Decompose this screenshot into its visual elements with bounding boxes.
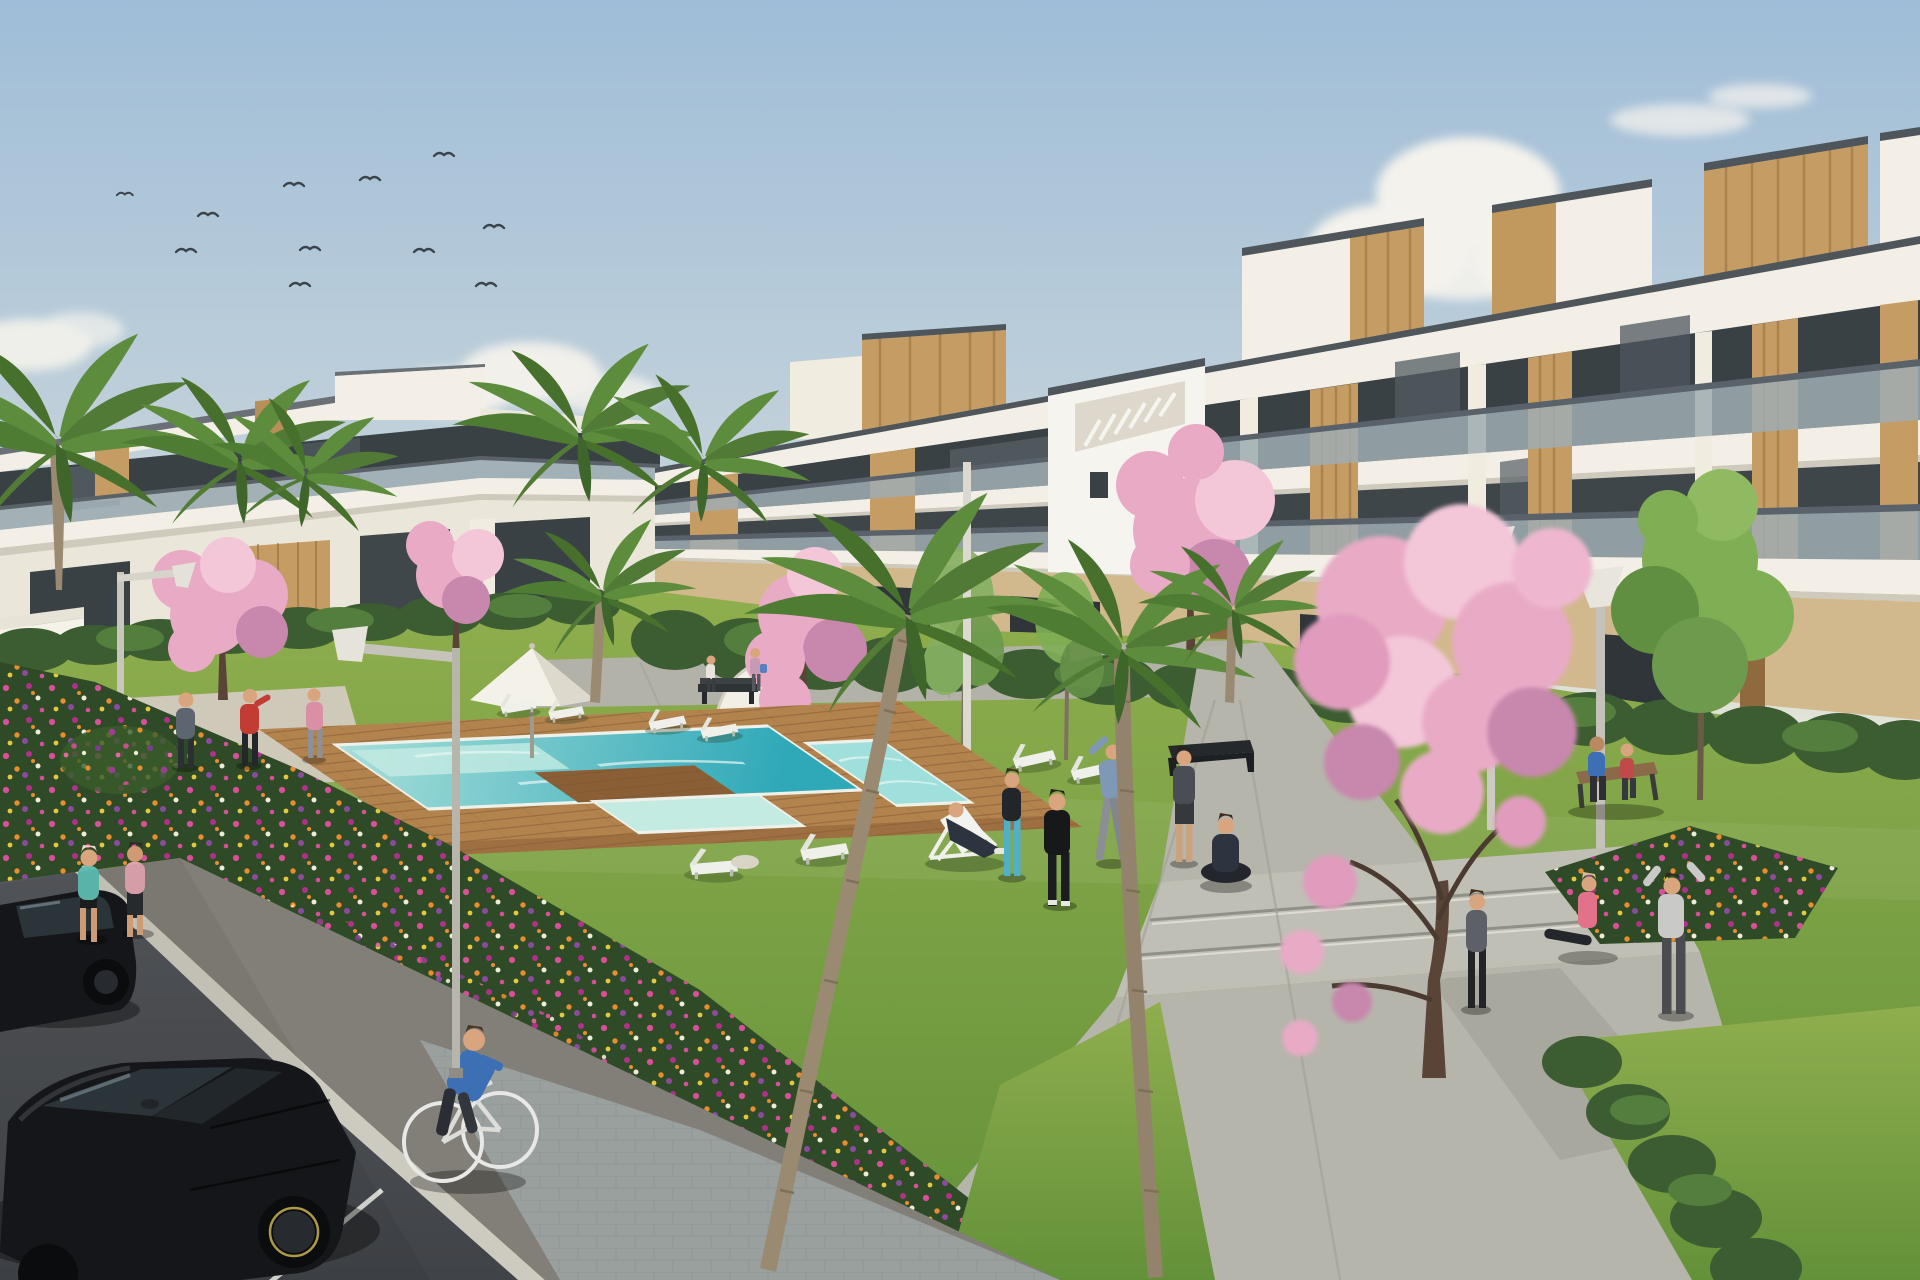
left-roof-block xyxy=(335,367,485,420)
lounger-cushion xyxy=(731,855,759,869)
window-reflection xyxy=(1620,315,1690,394)
penthouse-white xyxy=(1880,134,1920,250)
bench-man-blue xyxy=(1588,737,1606,803)
tower-window xyxy=(1090,472,1108,498)
reclining-man-head xyxy=(949,803,964,818)
cyclist-head xyxy=(463,1029,485,1051)
shoulder-bag xyxy=(760,664,767,673)
penthouse-white xyxy=(790,356,862,440)
render-canvas xyxy=(0,0,1920,1280)
scene-rendering xyxy=(0,0,1920,1280)
